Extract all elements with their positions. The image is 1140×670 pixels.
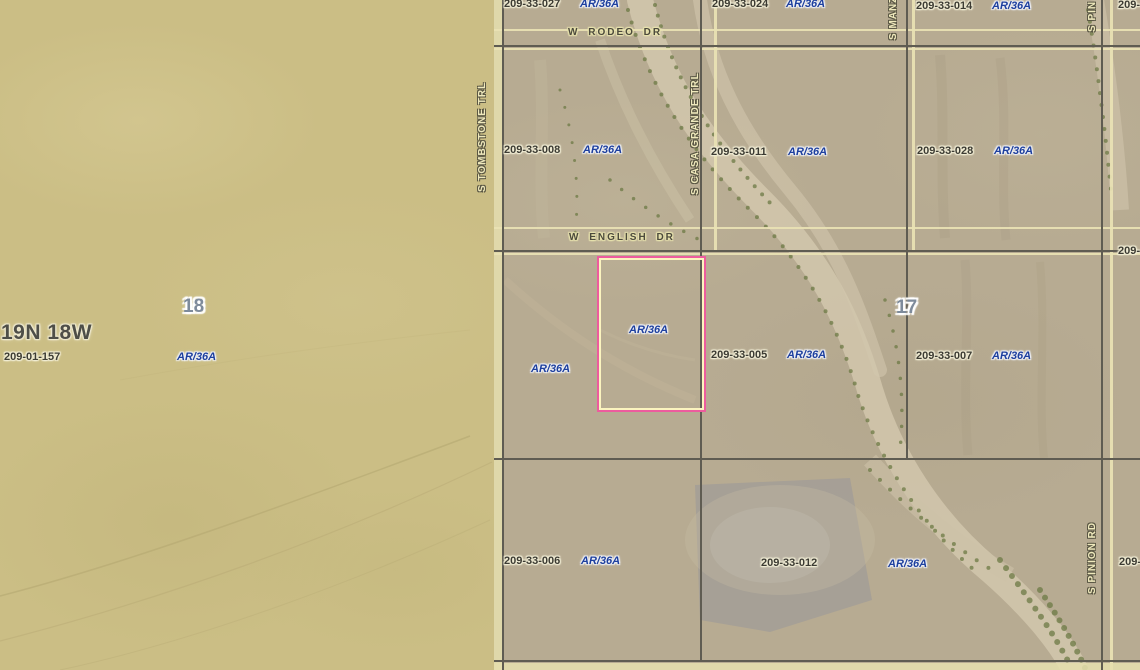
street-label-casa-grande: S CASA GRANDE TRL (690, 72, 703, 195)
zone-label: AR/36A (580, 0, 619, 10)
parcel-line-rodeo (494, 45, 1140, 47)
parcel-line-mid (494, 458, 1140, 460)
road-line-rodeo-south (494, 48, 1140, 50)
apn-label-209-33-027: 209-33-027 (504, 0, 560, 10)
zone-label: AR/36A (788, 146, 827, 158)
apn-label-209-33-012: 209-33-012 (761, 557, 817, 569)
zone-label: AR/36A (994, 145, 1033, 157)
road-line-english-north (494, 227, 1140, 229)
zone-label: AR/36A (583, 144, 622, 156)
section-label-17: 17 (896, 298, 917, 319)
zone-label-west-of-highlight: AR/36A (531, 363, 570, 375)
apn-label-partial: 209- (1118, 0, 1140, 11)
apn-label-209-33-024: 209-33-024 (712, 0, 768, 10)
apn-label-partial: 209- (1119, 556, 1140, 568)
road-line-pinion (1110, 0, 1113, 670)
apn-label-209-33-007: 209-33-007 (916, 350, 972, 362)
township-label: 19N 18W (1, 321, 92, 344)
zone-label: AR/36A (888, 558, 927, 570)
parcel-line-pinion (1101, 0, 1103, 670)
apn-label-209-01-157: 209-01-157 (4, 351, 60, 363)
apn-label-209-33-014: 209-33-014 (916, 0, 972, 12)
street-label-manzanita-partial: S MANZ (888, 0, 901, 40)
zone-label-highlighted-parcel: AR/36A (629, 324, 668, 336)
terrain-parcel-area (494, 0, 1140, 670)
zone-label: AR/36A (581, 555, 620, 567)
zone-label: AR/36A (992, 0, 1031, 12)
parcel-line-bottom (494, 660, 1140, 662)
apn-label-209-33-005: 209-33-005 (711, 349, 767, 361)
parcel-line-section-west (502, 0, 504, 670)
zone-label: AR/36A (786, 0, 825, 10)
road-line-manzanita (912, 0, 915, 250)
parcel-line-english (494, 250, 1140, 252)
street-label-rodeo: W RODEO DR (568, 27, 662, 38)
zone-label: AR/36A (787, 349, 826, 361)
zone-label: AR/36A (992, 350, 1031, 362)
apn-label-209-33-011: 209-33-011 (711, 146, 767, 158)
street-label-pinion: S PINION RD (1087, 522, 1100, 594)
apn-label-209-33-006: 209-33-006 (504, 555, 560, 567)
street-label-english: W ENGLISH DR (569, 232, 675, 243)
street-label-tombstone: S TOMBSTONE TRL (477, 82, 490, 192)
road-surface-bottom (494, 663, 1140, 670)
apn-label-209-33-008: 209-33-008 (504, 144, 560, 156)
section-label-18: 18 (183, 297, 204, 318)
road-line-casa-grande (714, 0, 717, 250)
apn-label-partial: 209- (1118, 245, 1140, 257)
zone-label: AR/36A (177, 351, 216, 363)
road-surface-tombstone (494, 0, 502, 670)
street-label-pinion-partial: S PIN (1087, 1, 1100, 32)
map-canvas[interactable]: W RODEO DR W ENGLISH DR S TOMBSTONE TRL … (0, 0, 1140, 670)
apn-label-209-33-028: 209-33-028 (917, 145, 973, 157)
road-line-english-south (494, 253, 1140, 255)
parcel-line-manzanita (906, 0, 908, 460)
